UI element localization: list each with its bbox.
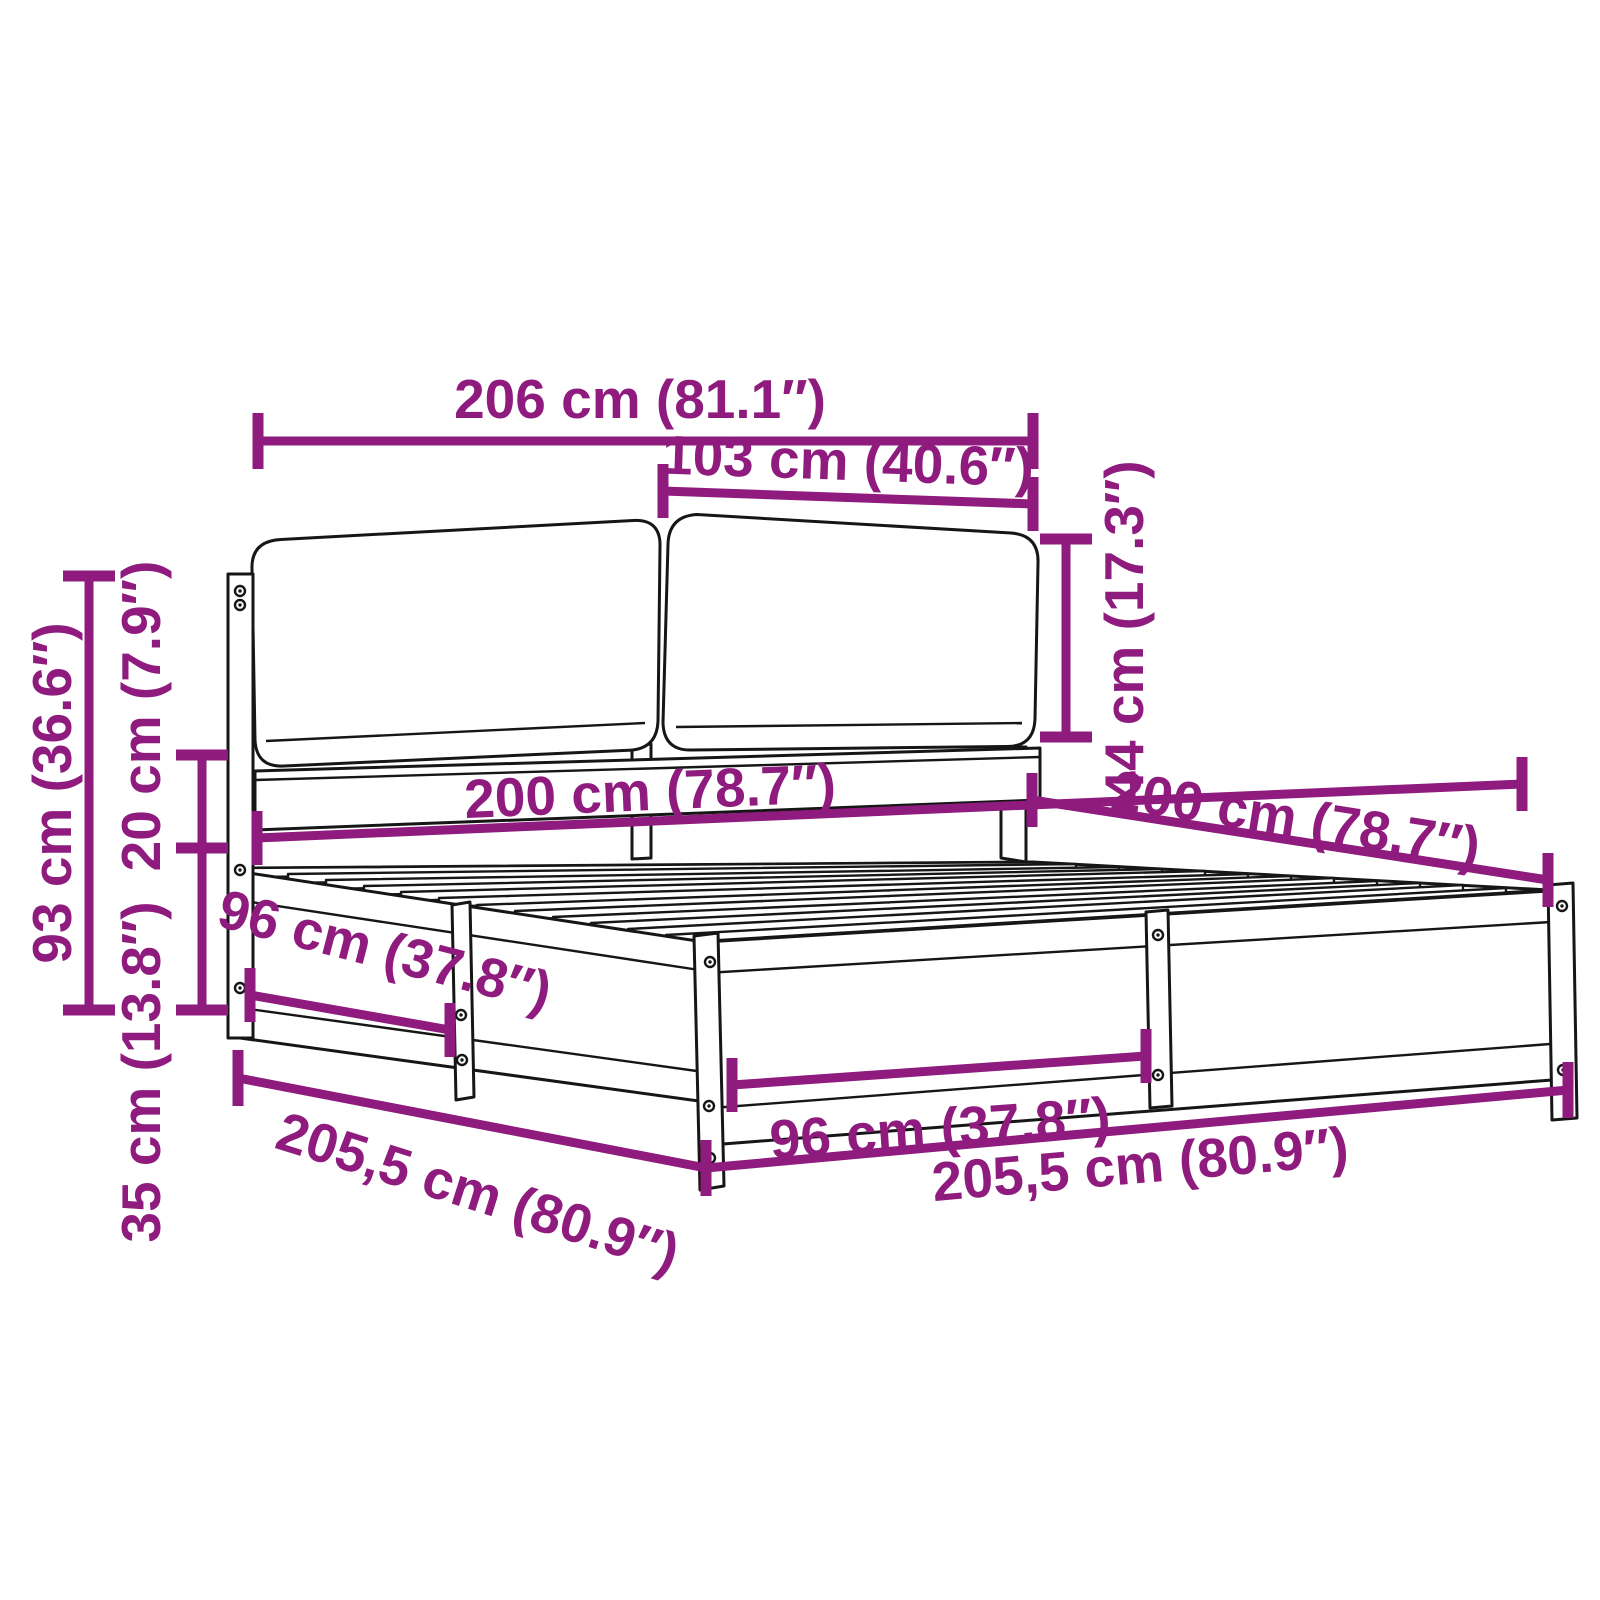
screw-icon	[456, 1010, 466, 1020]
dim-headboard-height-label: 93 cm (36.6″)	[21, 622, 83, 963]
dim-mattress-depth-label: 200 cm (78.7″)	[1108, 758, 1485, 877]
screw-icon	[457, 1055, 467, 1065]
screw-icon	[235, 600, 245, 610]
headboard-cushion-right	[663, 515, 1038, 751]
dim-overall-width-label: 206 cm (81.1″)	[454, 368, 826, 430]
diagram-canvas: 206 cm (81.1″) 103 cm (40.6″) 44 cm (17.…	[0, 0, 1600, 1600]
dim-cushion-width-label: 103 cm (40.6″)	[661, 424, 1035, 499]
headboard-cushion-left	[252, 520, 660, 766]
dimension-annotations: 206 cm (81.1″) 103 cm (40.6″) 44 cm (17.…	[21, 368, 1568, 1284]
screw-icon	[1153, 930, 1163, 940]
screw-icon	[1153, 1070, 1163, 1080]
dim-rail-height: 20 cm (7.9″)	[110, 561, 228, 872]
dim-rail-height-label: 20 cm (7.9″)	[110, 561, 172, 872]
screw-icon	[235, 586, 245, 596]
dim-cushion-height: 44 cm (17.3″)	[1040, 460, 1155, 801]
screw-icon	[235, 983, 245, 993]
dim-cushion-height-label: 44 cm (17.3″)	[1093, 460, 1155, 801]
bed-dimension-diagram: 206 cm (81.1″) 103 cm (40.6″) 44 cm (17.…	[0, 0, 1600, 1600]
dim-headboard-height: 93 cm (36.6″)	[21, 576, 115, 1010]
screw-icon	[704, 1101, 714, 1111]
dim-base-height-label: 35 cm (13.8″)	[110, 901, 172, 1242]
screw-icon	[235, 865, 245, 875]
dim-base-height: 35 cm (13.8″)	[110, 848, 228, 1243]
screw-icon	[1557, 901, 1567, 911]
screw-icon	[705, 957, 715, 967]
